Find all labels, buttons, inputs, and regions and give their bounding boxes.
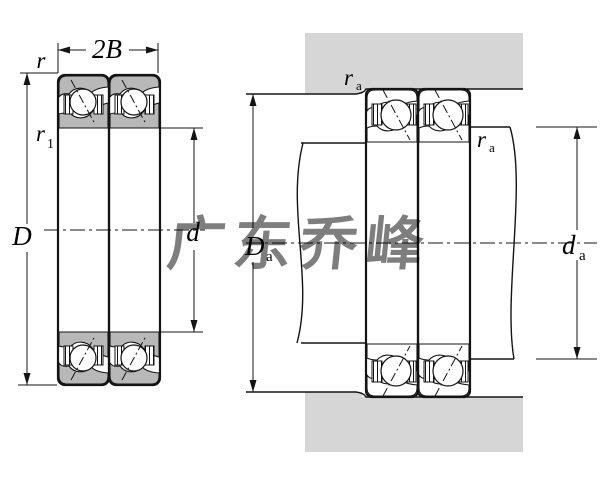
ball [433, 100, 463, 130]
housing-block-top [305, 33, 523, 89]
dimension-2B: 2B [58, 34, 158, 73]
dimension-D: D [11, 73, 58, 385]
label-da: da [562, 230, 586, 264]
label-ra-shaft: ra [477, 127, 495, 155]
ball [381, 100, 411, 130]
label-2B: 2B [92, 34, 122, 64]
label-r1: r1 [36, 121, 54, 152]
housing-shoulder-bottom [305, 392, 362, 397]
housing-block-bottom [305, 397, 523, 452]
label-r: r [37, 48, 47, 73]
housing-shoulder-top [305, 89, 362, 94]
label-D: D [11, 221, 32, 251]
bearing-diagram: 2B D d r r1 [0, 0, 600, 491]
watermark-text: 广东乔峰 [164, 210, 435, 278]
